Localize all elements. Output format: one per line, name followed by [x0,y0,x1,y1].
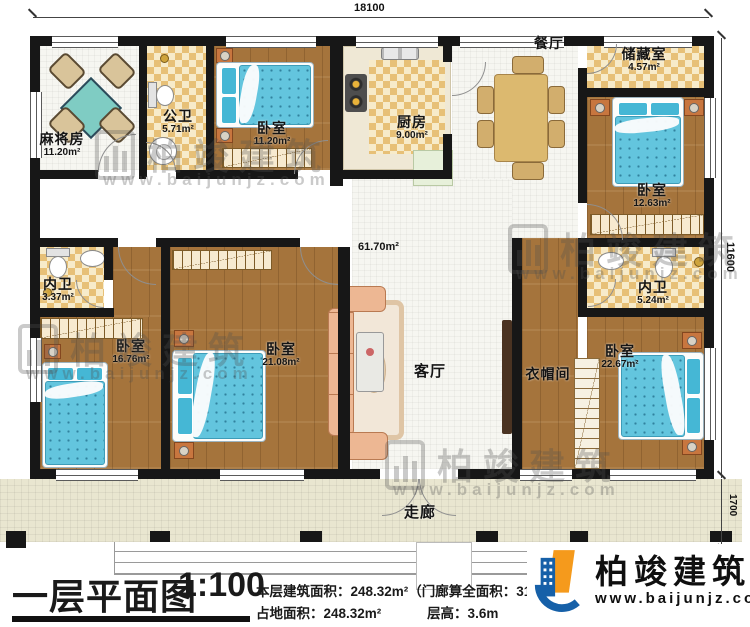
tv-cabinet [502,320,512,434]
nightstand [174,442,194,459]
wall [161,247,170,479]
window [56,469,138,481]
window [220,469,304,481]
label-bath-right: 内卫5.24m² [637,279,669,307]
nightstand [590,99,610,116]
dining-chair [477,120,494,148]
bed [172,350,266,442]
label-living: 客厅 [414,363,446,380]
floor-porch [0,479,742,542]
wall [206,36,214,177]
nightstand [684,99,704,116]
drawing-title: 一层平面图 [12,568,197,620]
window [610,469,696,481]
dimension-line-right [721,38,722,478]
floor-cloakroom [522,238,578,469]
dimension-top: 18100 [354,2,385,14]
wall [156,238,300,247]
company-logo: 柏竣建筑 www.baijunjz.com [527,544,750,618]
dining-chair [548,120,565,148]
wall [176,170,214,179]
label-bath-left: 内卫3.37m² [42,276,74,304]
info-line-2: 占地面积：248.32m² 层高：3.6m [256,602,540,622]
entry-threshold [380,469,458,479]
toilet-icon [655,256,673,278]
title-underline [12,616,250,622]
dining-table [494,74,548,162]
label-bedroom-top: 卧室11.20m² [254,120,291,148]
sink-icon [80,250,105,267]
dining-chair [548,86,565,114]
dining-chair [512,162,544,180]
wall [578,97,587,203]
label-bedroom-tr: 卧室12.63m² [633,182,670,210]
bed [42,362,108,468]
nightstand [216,48,233,63]
label-bedroom-br: 卧室22.67m² [601,343,638,371]
nightstand [682,438,702,455]
window [704,348,716,440]
wall [343,170,451,179]
dimension-line-porch [721,479,722,551]
label-kitchen: 厨房9.00m² [396,114,428,142]
sink-icon [598,252,624,270]
wardrobe [40,318,143,339]
label-dining: 餐厅 [534,35,564,51]
label-storage: 储藏室4.57m² [622,46,667,74]
wall [578,88,714,97]
label-cloakroom: 衣帽间 [526,366,571,382]
wall [512,238,522,479]
wall [104,238,113,280]
window [520,469,572,481]
toilet-icon [156,85,174,106]
wall [30,308,114,317]
floor-drain-icon [694,257,704,267]
window [226,36,316,48]
wall [338,247,350,479]
label-corridor: 走廊 [404,504,436,521]
coffee-table [356,332,384,392]
window [356,36,438,48]
company-name: 柏竣建筑 [595,555,750,590]
wall [443,36,452,62]
nightstand [682,332,702,349]
window [30,338,42,402]
nightstand [44,344,61,359]
wall [30,170,98,179]
nightstand [216,128,233,143]
label-public-bath: 公卫5.71m² [162,108,194,136]
wall [443,134,452,179]
floor-drain-icon [160,54,169,63]
porch-pillar [6,531,26,548]
bed [612,97,684,187]
company-logo-icon [531,546,585,616]
wall [578,308,714,317]
stove-icon [345,74,367,112]
floor-plan: 麻将房11.20m² 公卫5.71m² 卧室11.20m² 厨房9.00m² 餐… [0,0,750,627]
info-line-1: 本层建筑面积：248.32m²（门廊算全面积：31.1 [256,580,543,600]
company-url: www.baijunjz.com [595,590,750,607]
dining-chair [512,56,544,74]
toilet-icon [49,256,67,278]
wall [330,36,343,186]
dimension-porch: 1700 [727,494,738,516]
wall [578,68,587,90]
wall [139,170,146,179]
nightstand [174,330,194,347]
info-footprint: 占地面积：248.32m² [256,606,381,621]
closet-rack [574,358,600,470]
wall [578,238,587,317]
label-bedroom-bl1: 卧室16.76m² [112,338,149,366]
window [52,36,118,48]
wardrobe [172,250,272,270]
bed [216,62,314,128]
wall [214,170,298,179]
window [704,98,716,178]
drawing-scale: 1:100 [178,566,265,605]
dining-chair [477,86,494,114]
info-floor-height: 层高：3.6m [427,606,498,621]
label-bedroom-bl2: 卧室21.08m² [262,341,299,369]
label-open-area: 61.70m² [358,241,399,253]
dimension-line-top [33,17,709,18]
dimension-right: 11600 [724,242,736,272]
label-mahjong: 麻将房11.20m² [40,131,85,159]
kitchen-sink-icon [381,47,419,60]
